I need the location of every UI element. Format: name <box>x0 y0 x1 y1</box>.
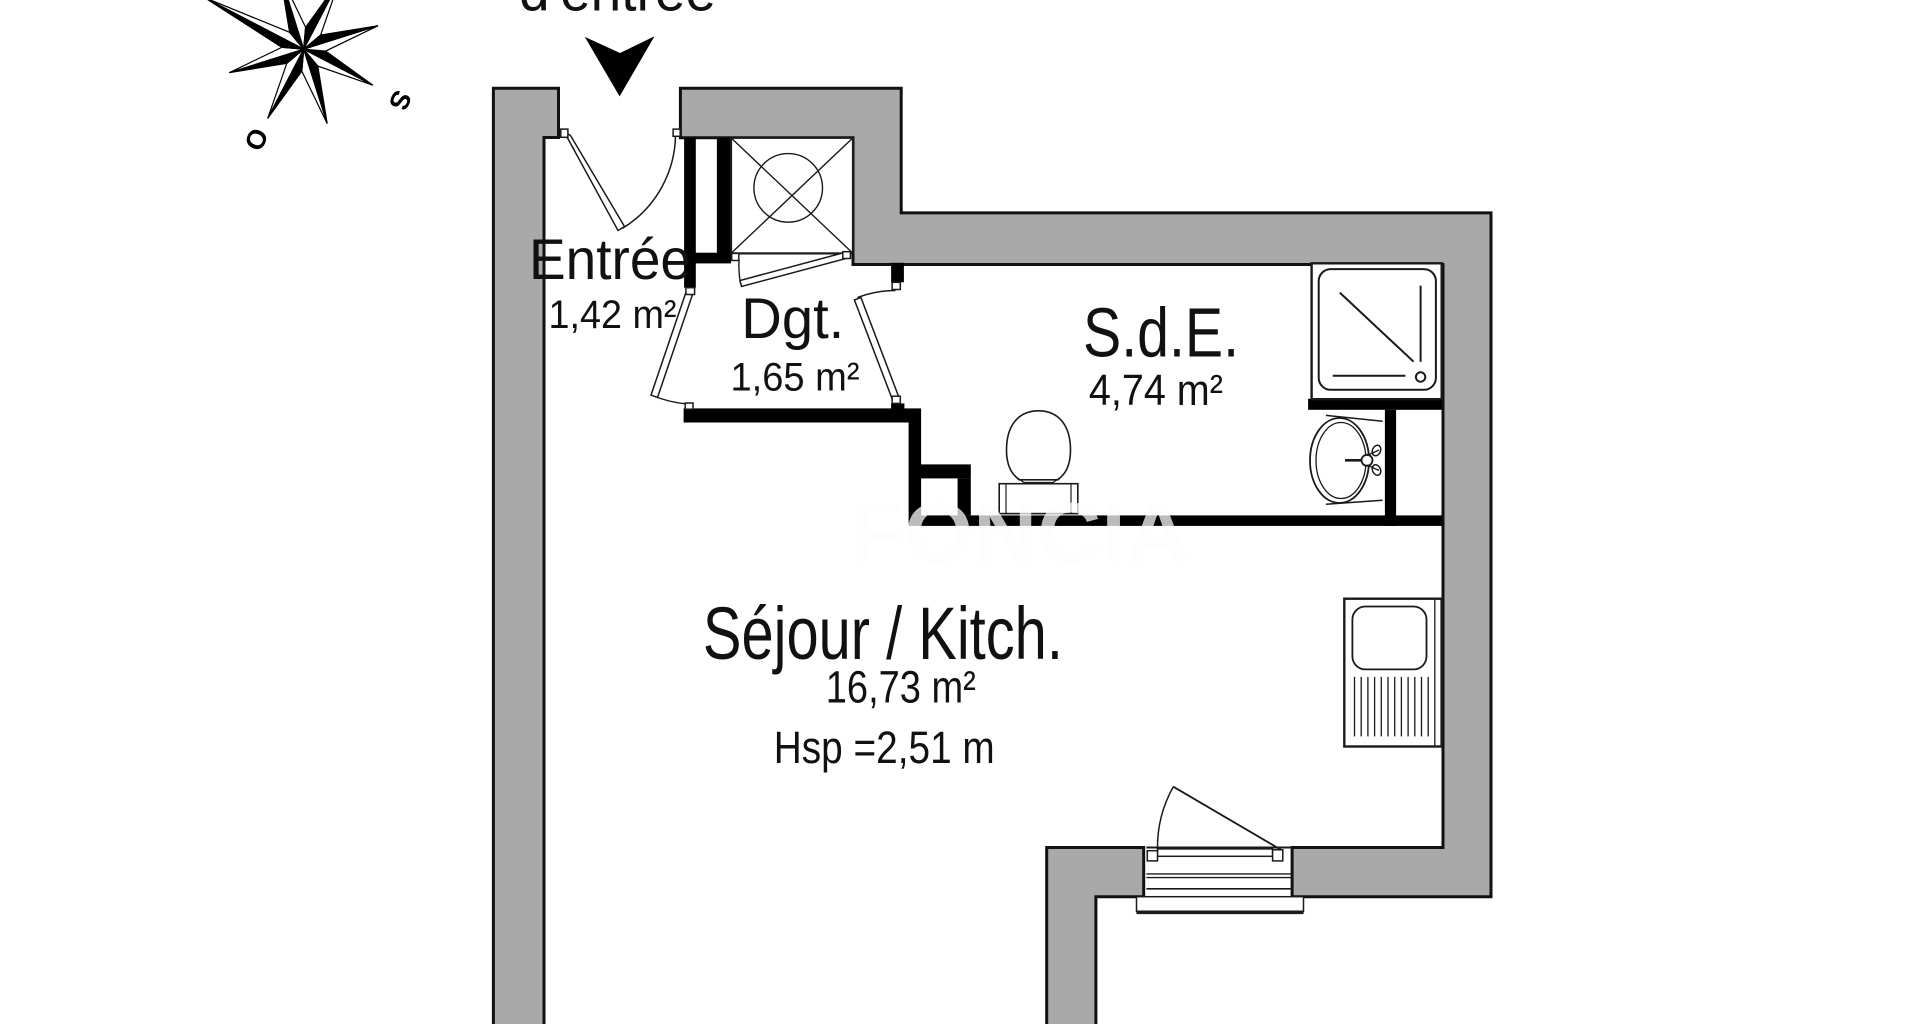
svg-text:S.d.E.: S.d.E. <box>1083 293 1239 371</box>
svg-text:4,74 m²: 4,74 m² <box>1089 367 1223 415</box>
svg-text:Dgt.: Dgt. <box>741 287 844 351</box>
svg-text:FONCIA: FONCIA <box>850 486 1190 581</box>
svg-text:1,42 m²: 1,42 m² <box>549 293 677 337</box>
svg-text:Hsp =2,51 m: Hsp =2,51 m <box>774 722 995 773</box>
svg-text:1,65 m²: 1,65 m² <box>731 356 860 400</box>
svg-text:16,73 m²: 16,73 m² <box>826 662 976 713</box>
svg-text:d'entrée: d'entrée <box>519 0 716 24</box>
svg-text:Entrée: Entrée <box>529 228 691 292</box>
